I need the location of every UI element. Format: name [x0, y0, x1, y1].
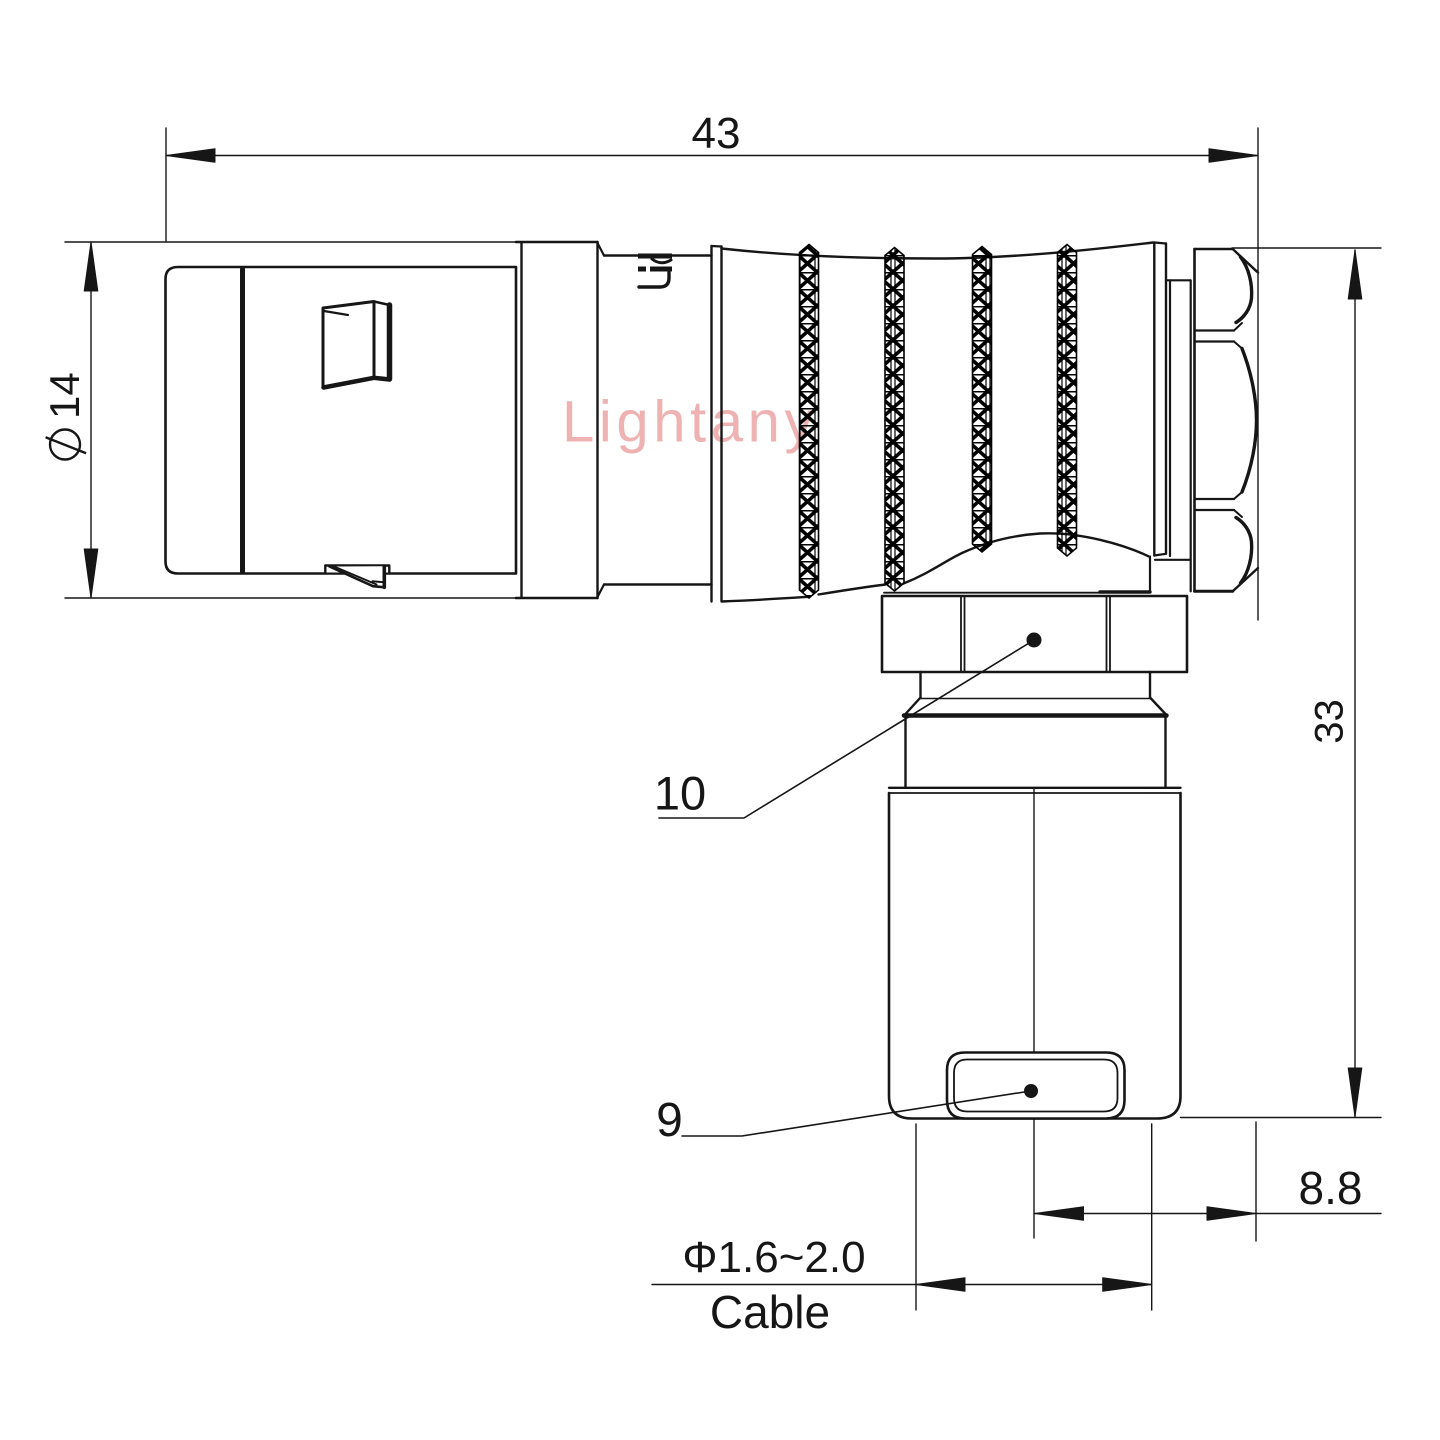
svg-text:Cable: Cable [710, 1286, 830, 1338]
svg-text:8.8: 8.8 [1299, 1162, 1363, 1214]
svg-text:43: 43 [692, 109, 741, 158]
svg-text:10: 10 [654, 767, 706, 820]
svg-text:14: 14 [41, 372, 88, 419]
svg-text:Φ1.6~2.0: Φ1.6~2.0 [682, 1233, 865, 1282]
svg-text:Lightany: Lightany [562, 390, 818, 455]
svg-text:33: 33 [1308, 699, 1352, 744]
svg-text:9: 9 [656, 1094, 683, 1147]
